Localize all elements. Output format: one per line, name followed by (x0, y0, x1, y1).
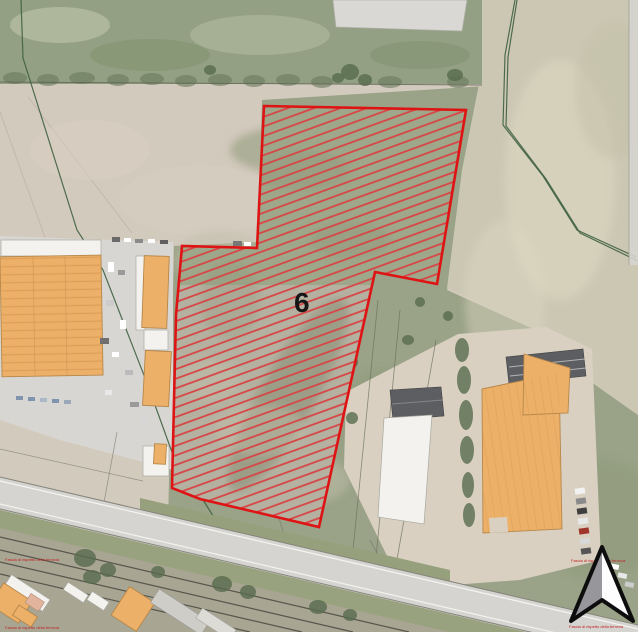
map-canvas[interactable]: 6 Fascia di rispetto della ferrovia Fasc… (0, 0, 638, 632)
concrete-pad (333, 0, 467, 31)
watermark-left-top: Fascia di rispetto della ferrovia (5, 557, 60, 562)
shed-orange-3 (153, 444, 166, 465)
watermark-left-bottom: Fascia di rispetto della ferrovia (5, 625, 60, 630)
shed-orange-2 (143, 350, 172, 406)
shed-orange-1 (142, 256, 169, 329)
east-roof-ridges (482, 373, 562, 533)
map-svg: 6 Fascia di rispetto della ferrovia Fasc… (0, 0, 638, 632)
zone-number-label: 6 (294, 287, 310, 318)
white-annex (1, 240, 101, 256)
right-edge-track (629, 0, 638, 265)
white-warehouse (378, 415, 432, 524)
shed-white-mid (144, 330, 168, 350)
warehouse-roof-ridges (0, 255, 103, 377)
loading-notch (489, 517, 508, 533)
watermark-right-bottom: Fascia di rispetto della ferrovia (569, 624, 624, 629)
